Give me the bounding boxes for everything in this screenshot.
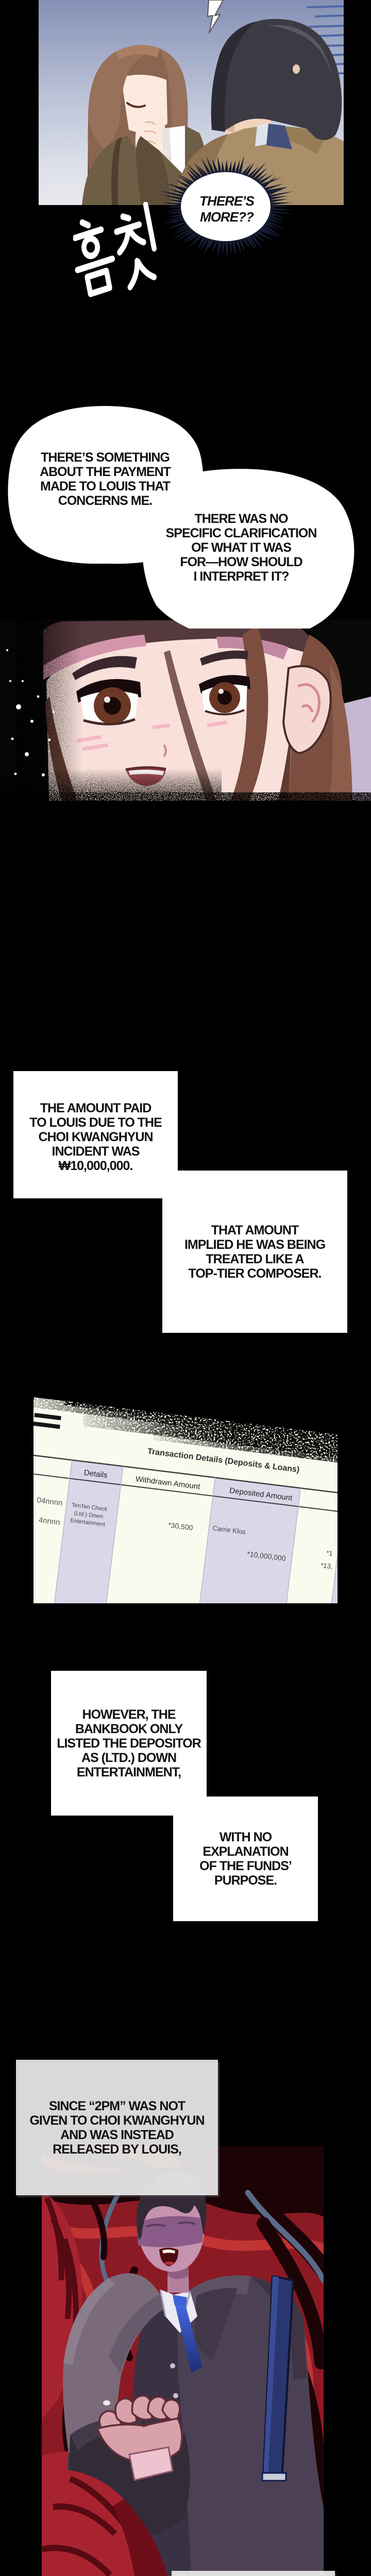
svg-text:*1: *1: [326, 1549, 333, 1557]
svg-text:*13,: *13,: [321, 1561, 333, 1570]
